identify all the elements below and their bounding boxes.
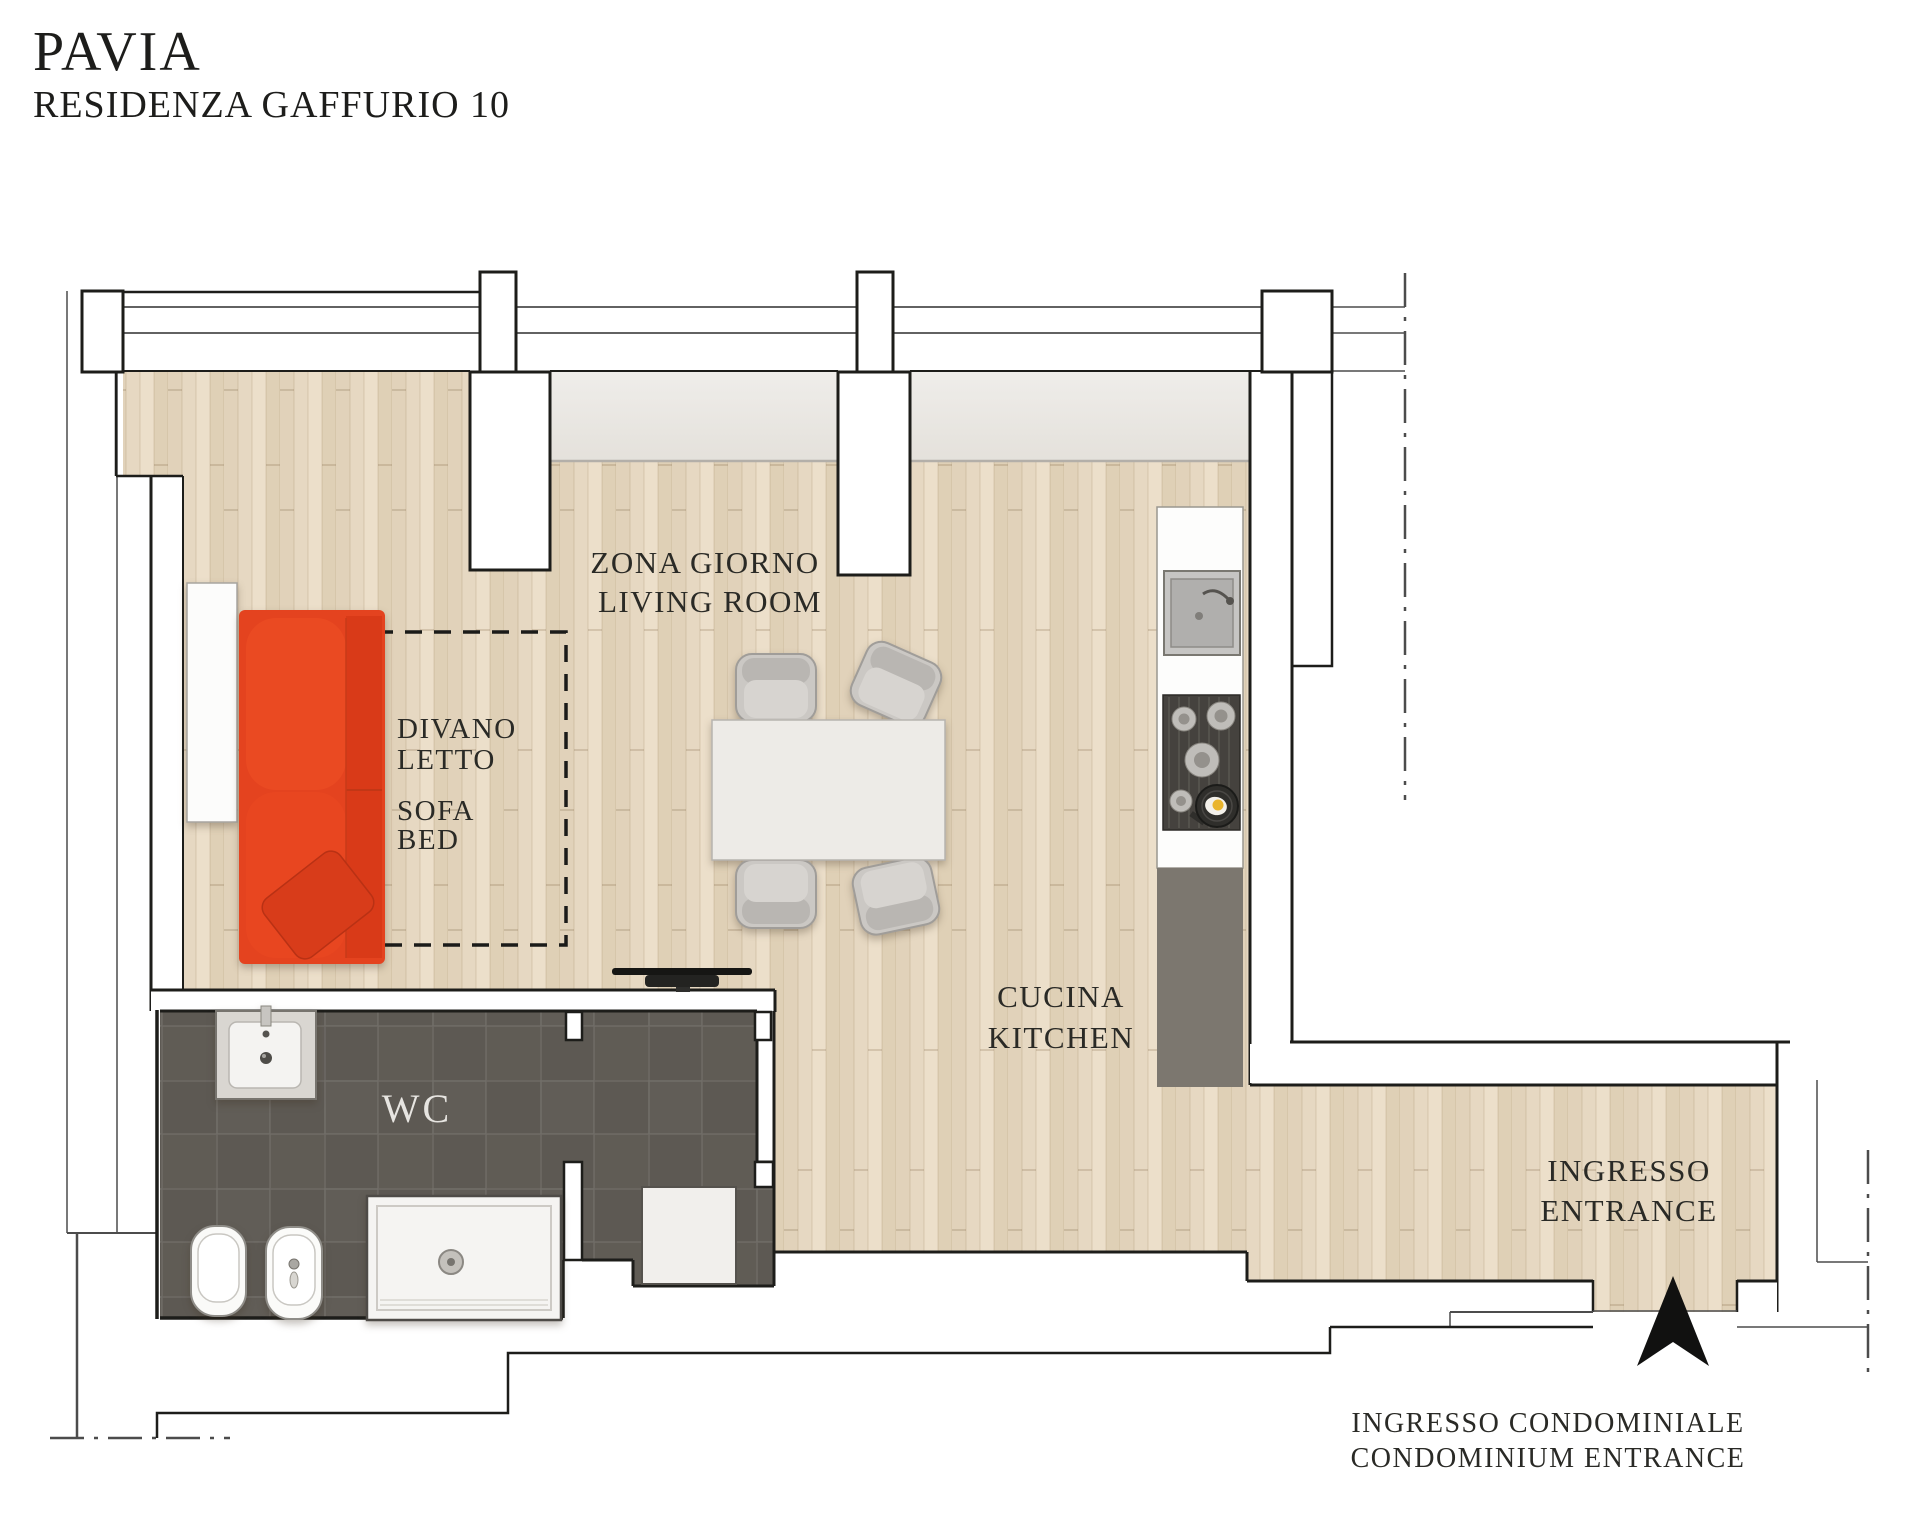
label-wc: WC [382, 1086, 452, 1131]
vanity-sink [216, 1006, 316, 1099]
toilet [191, 1226, 246, 1316]
label-entrance-en: ENTRANCE [1540, 1193, 1717, 1228]
floor-plan-page: PAVIA RESIDENZA GAFFURIO 10 [0, 0, 1920, 1514]
label-sofa-it-1: DIVANO [397, 713, 517, 745]
sofa-bed [239, 610, 385, 964]
window-band [112, 292, 1307, 372]
corner-block-left [82, 291, 123, 372]
kitchen-sink [1164, 571, 1240, 655]
counter-dark-section [1157, 868, 1243, 1087]
door-jamb-stub [566, 1012, 582, 1040]
label-living-room-it: ZONA GIORNO [590, 545, 819, 580]
label-sofa-en-2: BED [397, 824, 460, 856]
burner [1170, 790, 1192, 812]
storage-cabinet [642, 1187, 736, 1284]
door-jamb-stub [755, 1012, 771, 1040]
caption-condo-entrance-it: INGRESSO CONDOMINIALE [1351, 1408, 1744, 1439]
bidet [266, 1227, 322, 1319]
burner [1207, 702, 1235, 730]
door-jamb-stub [564, 1162, 582, 1260]
dining-table [712, 720, 945, 860]
gas-hob [1163, 695, 1240, 830]
label-entrance-it: INGRESSO [1547, 1153, 1711, 1188]
dining-chair [736, 654, 816, 722]
corner-block-right [1262, 291, 1332, 372]
dining-chair [736, 860, 816, 928]
burner [1172, 707, 1196, 731]
corridor-top-wall [1250, 1042, 1790, 1085]
label-sofa-en-1: SOFA [397, 795, 475, 827]
label-living-room-en: LIVING ROOM [598, 584, 822, 619]
right-wall [1250, 371, 1332, 1085]
label-kitchen-it: CUCINA [997, 979, 1125, 1014]
caption-condo-entrance-en: CONDOMINIUM ENTRANCE [1351, 1443, 1746, 1474]
label-sofa-it-2: LETTO [397, 744, 496, 776]
living-bottom-wall [151, 990, 775, 1012]
shower [367, 1196, 561, 1320]
floor-plan-svg: ZONA GIORNO LIVING ROOM CUCINA KITCHEN W… [0, 0, 1920, 1514]
wardrobe [187, 583, 237, 822]
burner [1185, 743, 1219, 777]
kitchen-counter [1157, 507, 1243, 1087]
label-kitchen-en: KITCHEN [988, 1020, 1135, 1055]
door-jamb-stub [755, 1162, 773, 1187]
